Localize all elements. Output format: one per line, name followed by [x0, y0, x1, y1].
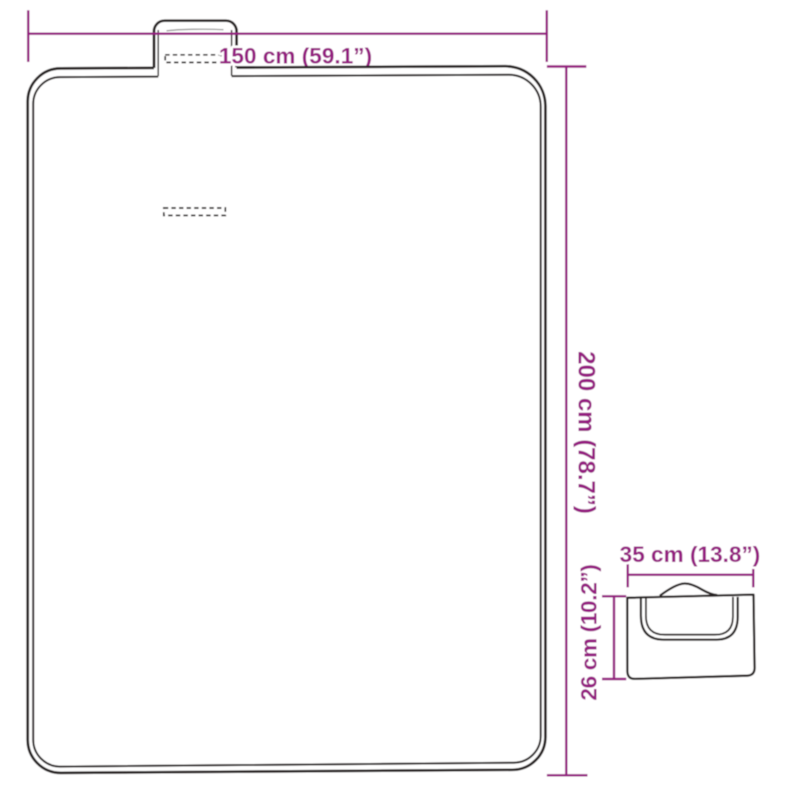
svg-text:150 cm (59.1”): 150 cm (59.1”): [219, 43, 372, 68]
svg-text:200 cm (78.7”): 200 cm (78.7”): [573, 351, 600, 514]
svg-text:26 cm (10.2”): 26 cm (10.2”): [577, 564, 602, 700]
svg-text:35 cm (13.8”): 35 cm (13.8”): [620, 542, 761, 567]
